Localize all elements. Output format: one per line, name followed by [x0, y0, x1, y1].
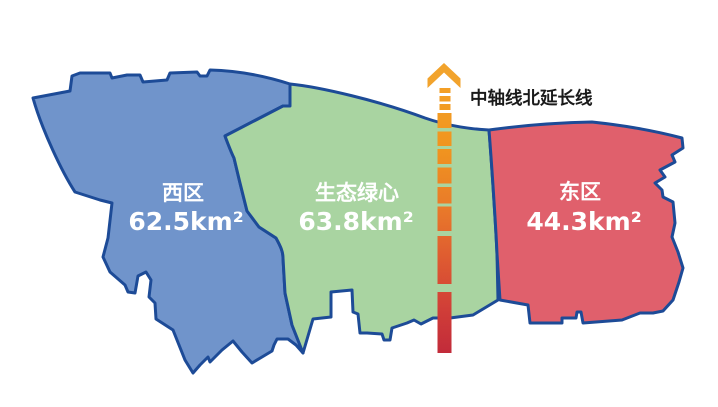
region-green-heart-name-label: 生态绿心 — [315, 181, 399, 205]
region-green-heart-area-label: 63.8km² — [298, 207, 413, 236]
region-east-name-label: 东区 — [559, 180, 601, 204]
region-east-area-label: 44.3km² — [526, 207, 641, 236]
axis-dash-segment — [438, 149, 452, 164]
axis-dash-segment — [438, 207, 452, 232]
axis-dash-segment — [440, 96, 451, 102]
central-axis-dashed-line — [438, 88, 452, 353]
axis-dash-segment — [438, 168, 452, 184]
region-west-name-label: 西区 — [162, 181, 204, 205]
axis-dash-segment — [440, 88, 451, 93]
district-map-canvas: 中轴线北延长线 西区 62.5km² 生态绿心 63.8km² 东区 44.3k… — [0, 0, 718, 407]
axis-dash-segment — [438, 187, 452, 204]
region-west-area-label: 62.5km² — [128, 207, 243, 236]
axis-label: 中轴线北延长线 — [470, 88, 593, 109]
district-map-infographic: 中轴线北延长线 西区 62.5km² 生态绿心 63.8km² 东区 44.3k… — [0, 0, 718, 407]
axis-dash-segment — [438, 236, 452, 284]
up-arrow-icon — [428, 63, 461, 88]
axis-dash-segment — [438, 292, 452, 353]
axis-dash-segment — [438, 113, 452, 128]
axis-dash-segment — [438, 132, 452, 147]
axis-dash-segment — [440, 104, 451, 110]
